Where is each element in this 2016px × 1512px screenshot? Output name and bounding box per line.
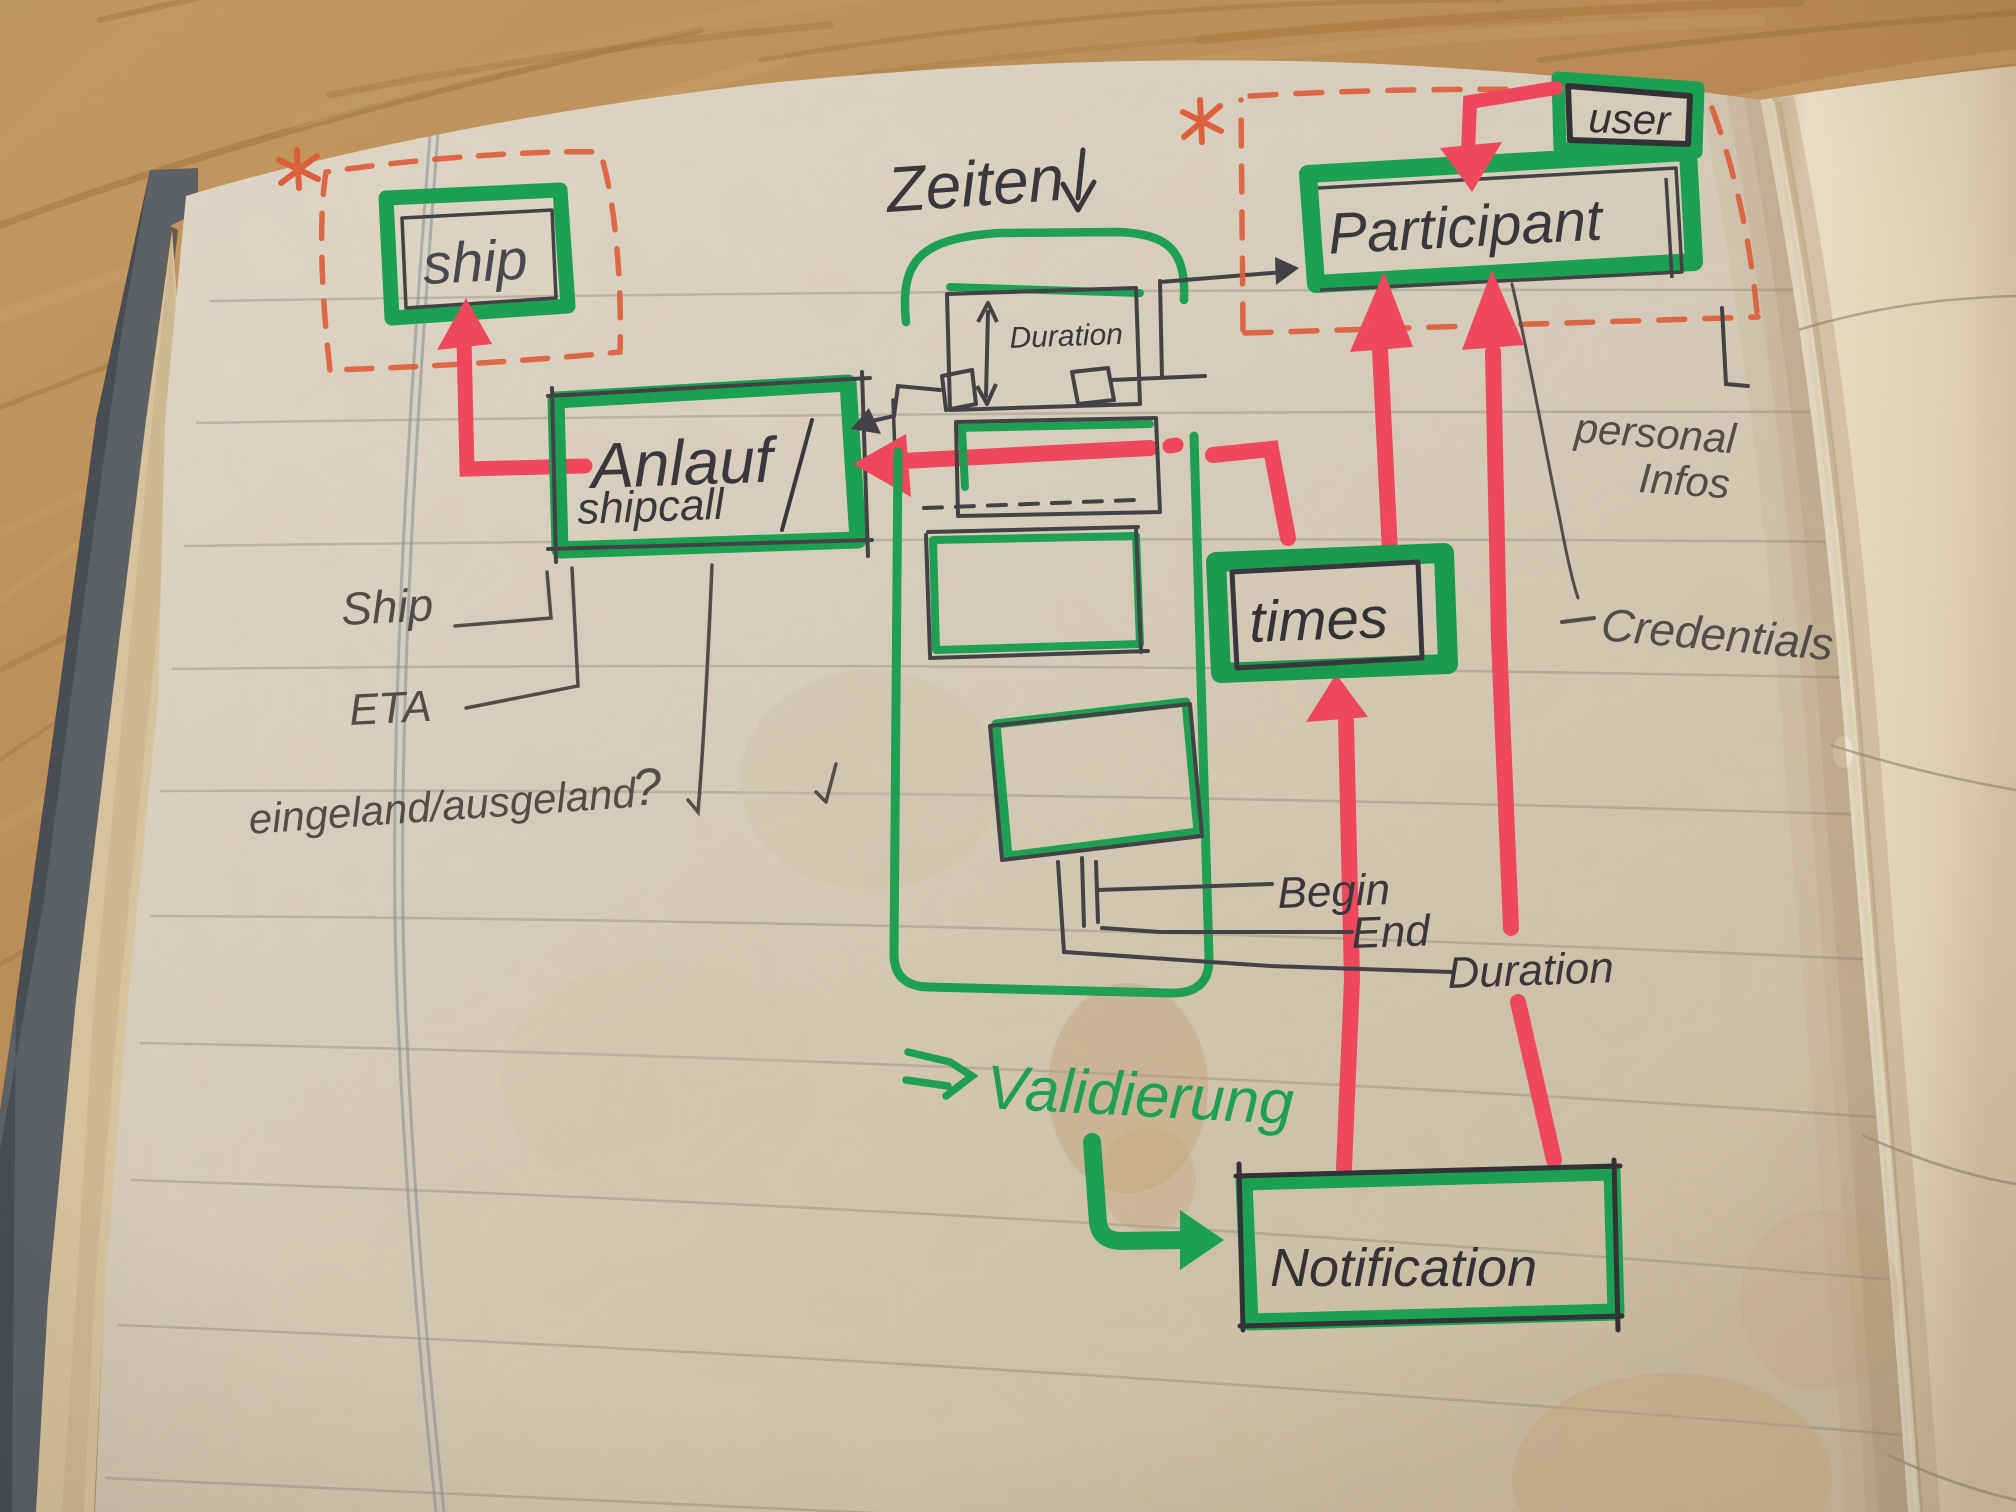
svg-text:End: End (1351, 906, 1432, 958)
svg-text:ship: ship (421, 228, 529, 297)
svg-text:Duration: Duration (1009, 318, 1123, 355)
svg-text:Notification: Notification (1270, 1238, 1537, 1298)
svg-text:?: ? (630, 758, 663, 818)
svg-text:user: user (1588, 94, 1673, 144)
svg-text:Ship: Ship (340, 578, 435, 635)
svg-text:shipcall: shipcall (576, 480, 726, 534)
svg-text:times: times (1248, 585, 1389, 655)
svg-text:Zeiten: Zeiten (882, 142, 1066, 226)
svg-text:Infos: Infos (1637, 454, 1731, 507)
svg-text:Duration: Duration (1447, 943, 1615, 998)
svg-text:ETA: ETA (348, 682, 433, 735)
